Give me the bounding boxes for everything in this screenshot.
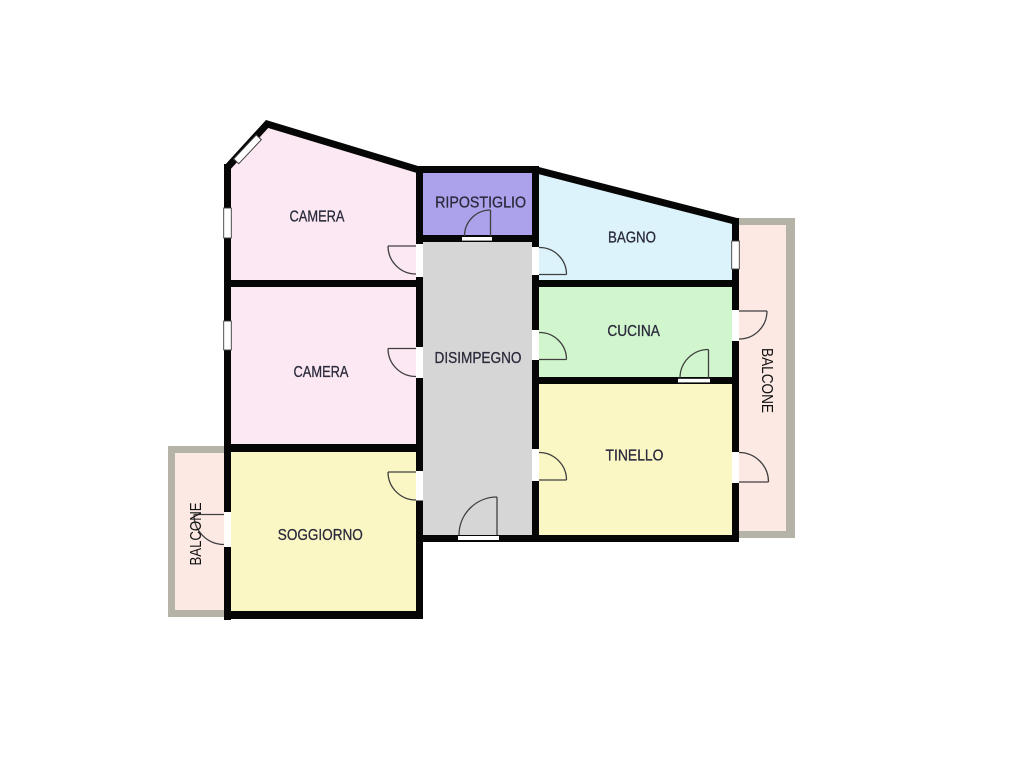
svg-text:RIPOSTIGLIO: RIPOSTIGLIO: [435, 195, 526, 212]
svg-text:SOGGIORNO: SOGGIORNO: [278, 527, 363, 544]
svg-text:TINELLO: TINELLO: [606, 448, 664, 465]
svg-text:BALCONE: BALCONE: [188, 503, 205, 566]
svg-text:DISIMPEGNO: DISIMPEGNO: [435, 350, 522, 367]
svg-text:CAMERA: CAMERA: [290, 208, 345, 225]
svg-text:BAGNO: BAGNO: [608, 229, 656, 246]
svg-text:CAMERA: CAMERA: [294, 364, 349, 381]
svg-text:CUCINA: CUCINA: [607, 323, 660, 340]
svg-text:BALCONE: BALCONE: [758, 348, 775, 413]
